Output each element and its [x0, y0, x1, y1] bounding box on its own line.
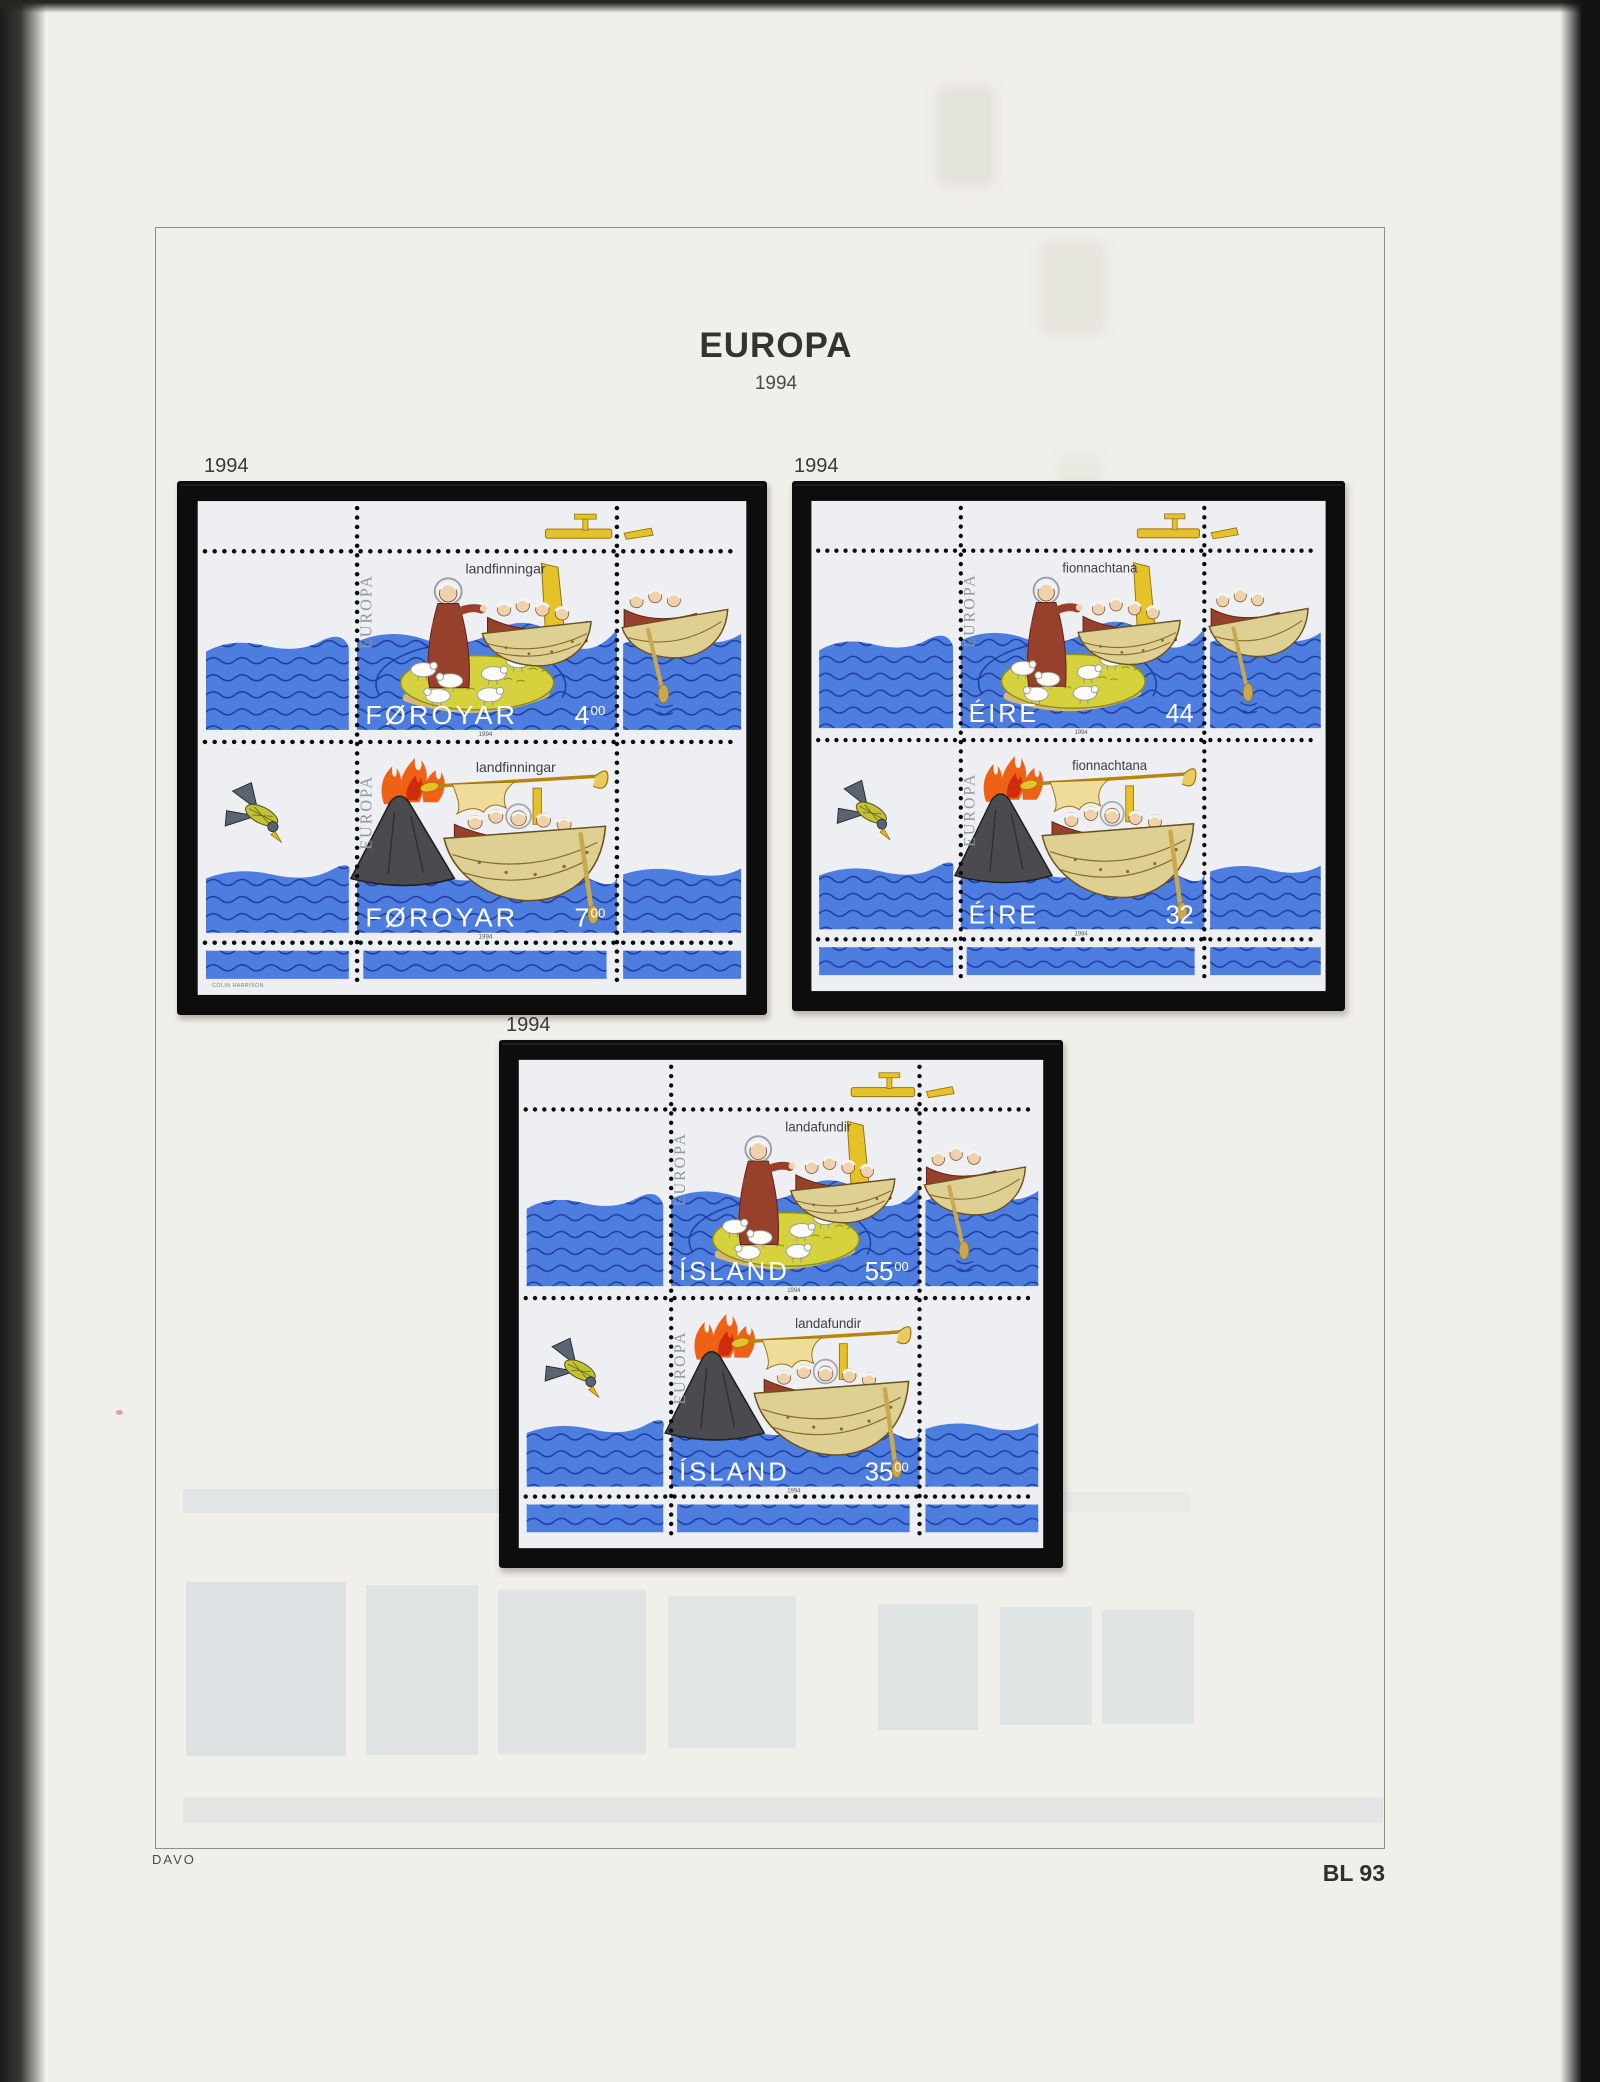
show-through-ghost	[878, 1604, 978, 1730]
country-name-text: FØROYAR	[365, 700, 518, 730]
sheet-canvas: EUROPAEUROPAlandafundirlandafundirÍSLAND…	[499, 1040, 1063, 1568]
issue-title-text: landfinningar	[476, 760, 556, 775]
europa-logo-text: EUROPA	[672, 1132, 689, 1206]
photo-smudge	[1040, 240, 1106, 336]
country-name-text: FØROYAR	[365, 903, 518, 933]
micro-year-text: 1994	[1075, 730, 1089, 736]
issue-title-text: landfinningar	[466, 562, 546, 577]
denomination-text: 44	[1166, 700, 1194, 728]
issue-title-text: fionnachtana	[1062, 560, 1138, 575]
publisher-text: DAVO	[152, 1852, 196, 1867]
micro-year-text: 1994	[479, 934, 493, 941]
europa-logo-text: EUROPA	[672, 1331, 689, 1405]
souvenir-sheet-faroe: EUROPAEUROPAlandfinningarlandfinningarFØ…	[177, 481, 767, 1015]
page-year: 1994	[576, 373, 976, 395]
photo-edge-top	[0, 0, 1600, 13]
sheet-canvas: EUROPAEUROPAlandfinningarlandfinningarFØ…	[177, 481, 767, 1015]
photo-edge-left	[0, 0, 46, 2082]
show-through-ghost	[186, 1582, 346, 1756]
issue-title-text: landafundir	[795, 1316, 862, 1331]
designer-credit-text: COLIN HARRISON	[212, 983, 264, 989]
sheet-canvas: EUROPAEUROPAfionnachtanafionnachtanaÉIRE…	[792, 481, 1345, 1011]
country-name-text: ÉIRE	[969, 900, 1039, 929]
show-through-ghost	[668, 1596, 796, 1748]
denomination-text: 32	[1166, 901, 1194, 929]
micro-year-text: 1994	[787, 1288, 801, 1294]
show-through-ghost	[498, 1590, 646, 1754]
catalog-number-text: BL 93	[1180, 1860, 1385, 1887]
photo-edge-right	[1560, 0, 1600, 2082]
europa-logo-text: EUROPA	[356, 775, 375, 850]
europa-logo-text: EUROPA	[962, 573, 979, 647]
show-through-ghost	[1000, 1607, 1092, 1725]
micro-year-text: 1994	[787, 1489, 801, 1495]
micro-year-text: 1994	[479, 731, 493, 738]
micro-year-text: 1994	[1075, 931, 1089, 937]
country-name-text: ÉIRE	[969, 699, 1039, 728]
souvenir-sheet-eire: EUROPAEUROPAfionnachtanafionnachtanaÉIRE…	[792, 481, 1345, 1011]
sheet-year-label-island: 1994	[506, 1014, 551, 1037]
country-name-text: ÍSLAND	[679, 1257, 790, 1286]
europa-logo-text: EUROPA	[962, 773, 979, 847]
country-name-text: ÍSLAND	[679, 1458, 790, 1487]
europa-logo-text: EUROPA	[356, 574, 375, 649]
album-page-photo: EUROPA 1994 1994 1994 1994 EUROPAEUROPAl…	[0, 0, 1600, 2082]
issue-title-text: fionnachtana	[1072, 758, 1148, 773]
show-through-ghost	[183, 1797, 1383, 1823]
page-header: EUROPA 1994	[576, 326, 976, 395]
sheet-year-label-faroe: 1994	[204, 455, 249, 478]
photo-speck	[116, 1410, 123, 1415]
show-through-ghost	[366, 1585, 478, 1755]
issue-title-text: landafundir	[785, 1119, 852, 1134]
photo-smudge	[936, 86, 996, 186]
show-through-ghost	[1102, 1610, 1194, 1724]
page-title: EUROPA	[576, 326, 976, 366]
souvenir-sheet-island: EUROPAEUROPAlandafundirlandafundirÍSLAND…	[499, 1040, 1063, 1568]
sheet-year-label-eire: 1994	[794, 455, 839, 478]
